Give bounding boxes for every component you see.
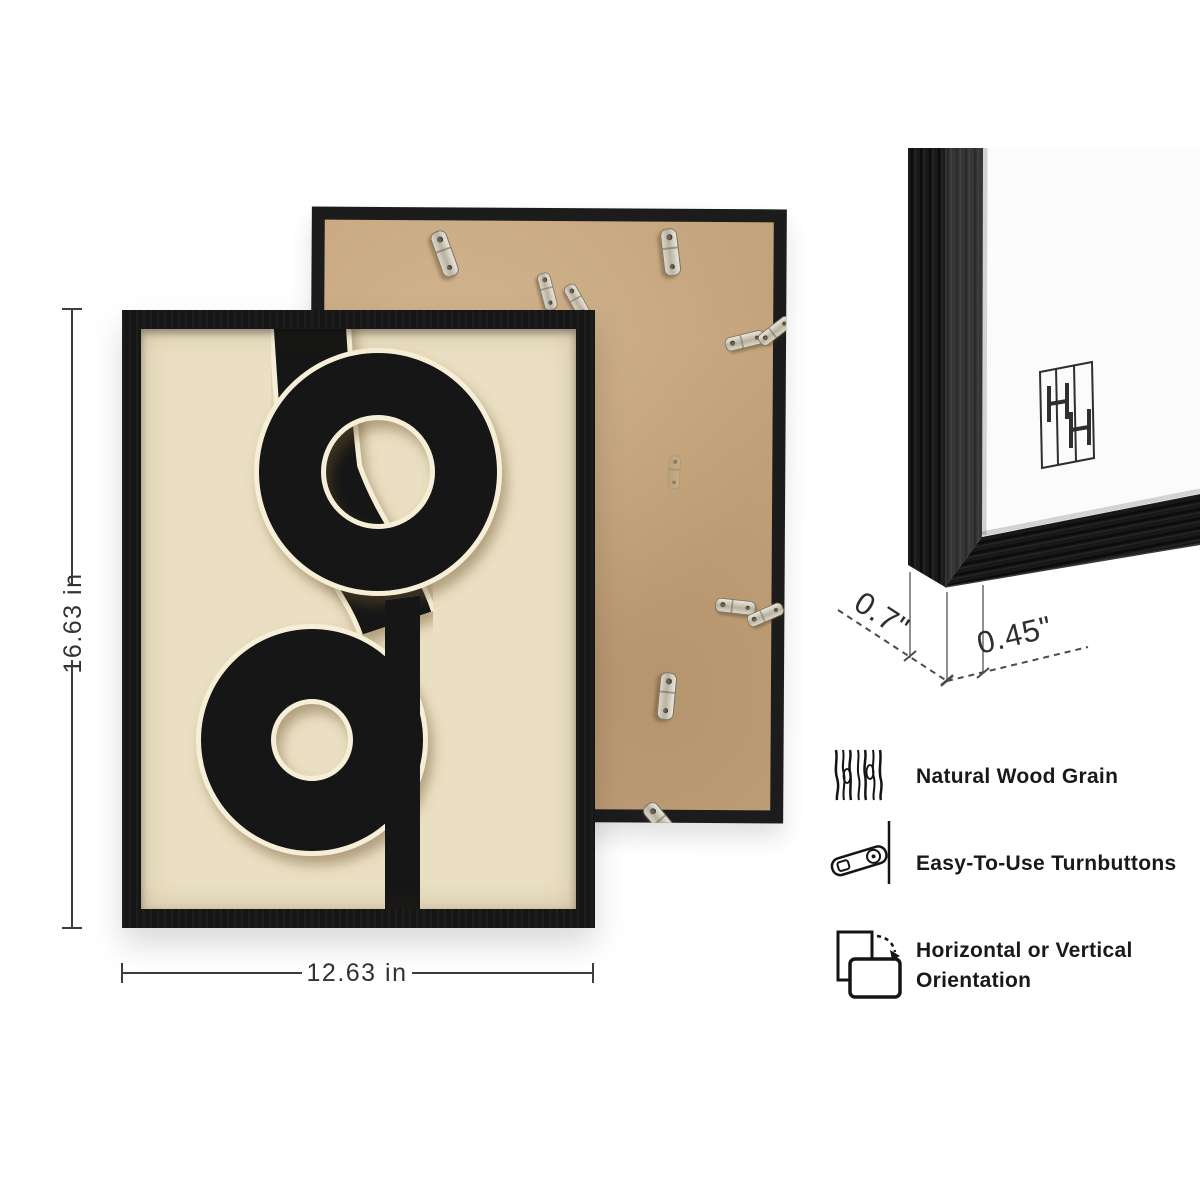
feature-label-orientation-line2: Orientation bbox=[916, 966, 1133, 996]
extension-lines bbox=[910, 572, 983, 682]
artwork bbox=[141, 329, 576, 909]
height-dim-label: 16.63 in bbox=[59, 573, 88, 674]
frame-corner-closeup: 0.7" 0.45" bbox=[830, 140, 1200, 700]
frame-front-face bbox=[908, 148, 945, 587]
feature-label-wood-grain: Natural Wood Grain bbox=[916, 762, 1118, 792]
turnbutton-icon bbox=[828, 816, 904, 892]
height-dim-line-lower bbox=[71, 660, 73, 928]
width-dim-label-box: 12.63 in bbox=[302, 957, 412, 989]
moulding-width-dim: 0.45" bbox=[941, 609, 1088, 686]
feature-label-turnbuttons: Easy-To-Use Turnbuttons bbox=[916, 849, 1176, 879]
height-dim-line-upper bbox=[71, 309, 73, 585]
height-dim-label-box: 16.63 in bbox=[38, 558, 108, 688]
turnbutton-clip bbox=[429, 228, 461, 279]
frame-front-view bbox=[122, 310, 595, 928]
mat-edge-shadow bbox=[984, 148, 985, 535]
knot-tail bbox=[393, 599, 412, 909]
mat-white-area bbox=[982, 148, 1200, 537]
width-dim-label: 12.63 in bbox=[307, 959, 408, 988]
turnbutton-clip bbox=[640, 799, 684, 823]
moulding-width-dim-label: 0.45" bbox=[973, 609, 1055, 661]
feature-label-orientation-line1: Horizontal or Vertical bbox=[916, 936, 1133, 966]
depth-dim-label: 0.7" bbox=[848, 585, 916, 646]
width-dim-line-left bbox=[122, 972, 302, 974]
width-dim-tick-right bbox=[592, 963, 594, 983]
turnbutton-clip bbox=[656, 672, 677, 721]
feature-label-orientation: Horizontal or Vertical Orientation bbox=[916, 936, 1133, 996]
embossed-mark bbox=[668, 455, 681, 489]
knot-upper-loop bbox=[290, 384, 466, 560]
product-diagram: { "dimensions": { "height": "16.63 in", … bbox=[0, 0, 1200, 1200]
turnbutton-clip bbox=[536, 271, 559, 312]
turnbutton-clip bbox=[659, 227, 681, 277]
orientation-icon bbox=[830, 926, 906, 1004]
frame-side-face-sheen bbox=[945, 148, 983, 587]
width-dim-line-right bbox=[412, 972, 592, 974]
knot-artwork-graphic bbox=[141, 329, 576, 909]
wood-grain-icon bbox=[832, 748, 886, 802]
height-dim-tick-bottom bbox=[62, 927, 82, 929]
depth-dim: 0.7" bbox=[838, 585, 953, 685]
